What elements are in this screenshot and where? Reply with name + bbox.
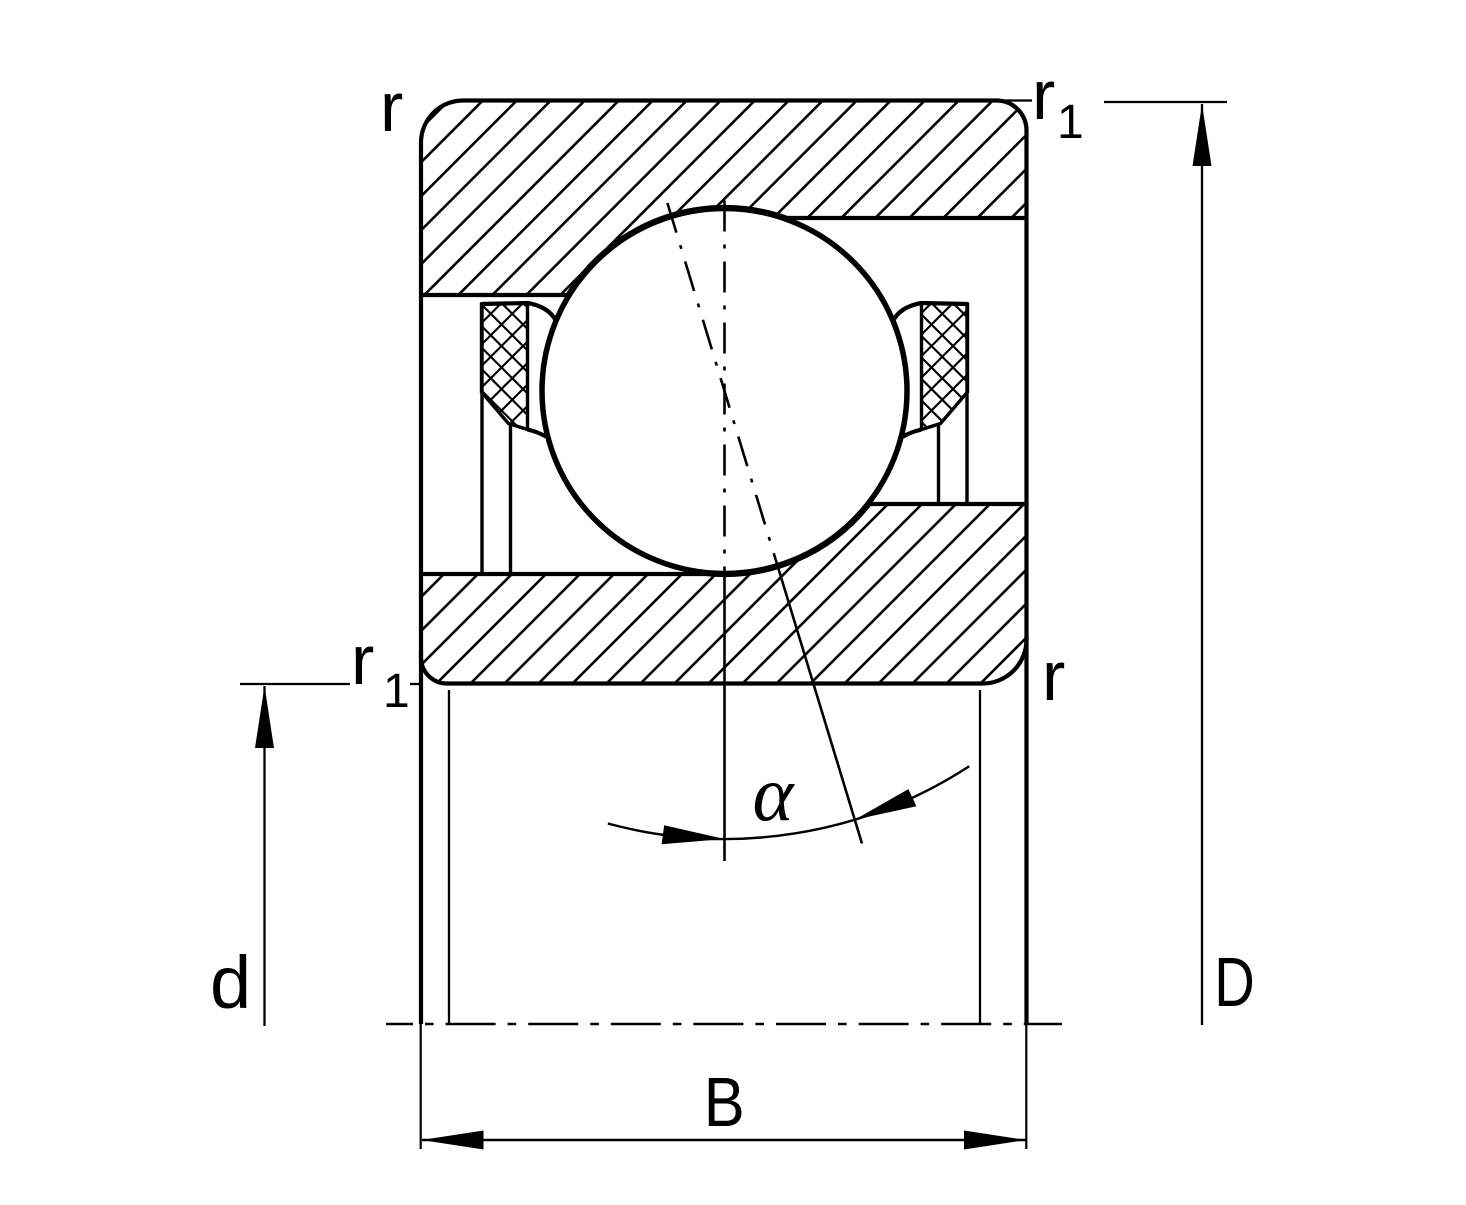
- svg-text:B: B: [704, 1063, 745, 1141]
- svg-text:D: D: [1214, 943, 1255, 1021]
- svg-text:r: r: [1042, 637, 1065, 715]
- svg-text:r: r: [351, 621, 374, 699]
- svg-text:α: α: [753, 750, 796, 837]
- svg-text:1: 1: [383, 665, 410, 718]
- svg-text:1: 1: [1057, 96, 1084, 149]
- svg-text:r: r: [1032, 56, 1055, 134]
- svg-text:d: d: [210, 941, 251, 1024]
- svg-text:r: r: [380, 68, 403, 146]
